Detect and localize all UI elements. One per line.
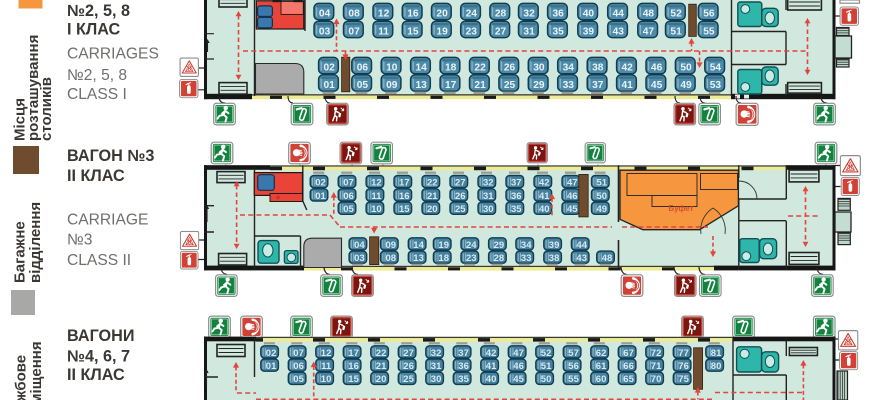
svg-text:41: 41 [486,361,497,372]
svg-text:43: 43 [613,26,625,37]
svg-text:50: 50 [680,63,692,74]
svg-text:76: 76 [678,361,689,372]
svg-text:80: 80 [711,361,722,372]
svg-text:32: 32 [431,348,442,359]
svg-text:42: 42 [539,178,550,189]
svg-text:22: 22 [376,348,387,359]
svg-text:45: 45 [567,204,578,215]
svg-text:28: 28 [494,253,505,264]
svg-text:ІІ КЛАС: ІІ КЛАС [67,167,125,185]
svg-text:43: 43 [576,253,587,264]
svg-text:приміщення: приміщення [28,341,45,400]
svg-text:25: 25 [504,80,516,91]
svg-text:47: 47 [513,348,524,359]
svg-text:13: 13 [416,80,428,91]
svg-text:25: 25 [403,374,414,385]
svg-text:відділення: відділення [27,202,44,283]
svg-text:47: 47 [567,178,578,189]
svg-text:34: 34 [521,240,532,251]
svg-text:13: 13 [413,253,424,264]
svg-text:27: 27 [495,26,507,37]
svg-text:71: 71 [651,361,662,372]
svg-text:39: 39 [549,240,560,251]
svg-text:15: 15 [348,374,359,385]
svg-text:18: 18 [445,63,457,74]
svg-text:12: 12 [321,348,332,359]
svg-text:Багажне: Багажне [12,221,29,283]
svg-text:33: 33 [563,80,575,91]
svg-text:21: 21 [474,80,486,91]
svg-text:столиків: столиків [38,77,55,141]
svg-text:01: 01 [266,361,277,372]
svg-text:20: 20 [376,374,387,385]
svg-text:65: 65 [623,374,634,385]
svg-text:61: 61 [596,361,607,372]
svg-text:35: 35 [511,204,522,215]
svg-text:72: 72 [651,348,662,359]
svg-text:14: 14 [416,63,428,74]
svg-text:26: 26 [504,63,516,74]
svg-text:20: 20 [427,204,438,215]
svg-text:37: 37 [458,348,469,359]
svg-text:22: 22 [427,178,438,189]
svg-text:42: 42 [622,63,634,74]
svg-text:18: 18 [438,253,449,264]
svg-text:08: 08 [348,9,360,20]
svg-text:03: 03 [354,253,365,264]
svg-text:12: 12 [378,9,390,20]
svg-text:20: 20 [436,9,448,20]
svg-text:01: 01 [324,80,336,91]
svg-text:31: 31 [523,26,535,37]
svg-text:ІІ КЛАС: ІІ КЛАС [67,366,125,384]
svg-text:23: 23 [466,253,477,264]
svg-text:19: 19 [438,240,449,251]
svg-text:07: 07 [343,178,354,189]
svg-text:62: 62 [596,348,607,359]
svg-text:17: 17 [445,80,457,91]
svg-text:40: 40 [539,204,550,215]
svg-text:42: 42 [486,348,497,359]
svg-text:50: 50 [541,374,552,385]
svg-text:49: 49 [597,204,608,215]
svg-text:26: 26 [455,191,466,202]
svg-text:07: 07 [293,348,304,359]
svg-text:16: 16 [348,361,359,372]
svg-text:31: 31 [431,361,442,372]
svg-text:51: 51 [597,178,608,189]
svg-text:30: 30 [483,204,494,215]
svg-text:01: 01 [315,191,326,202]
svg-text:34: 34 [563,63,575,74]
svg-text:32: 32 [483,178,494,189]
svg-text:35: 35 [553,26,565,37]
svg-text:03: 03 [319,26,331,37]
svg-text:52: 52 [670,9,682,20]
svg-text:41: 41 [622,80,634,91]
svg-text:25: 25 [455,204,466,215]
svg-text:11: 11 [378,26,389,37]
svg-text:70: 70 [651,374,662,385]
svg-text:17: 17 [348,348,359,359]
svg-text:ВАГОНИ: ВАГОНИ [67,327,134,345]
svg-text:27: 27 [403,348,414,359]
svg-text:57: 57 [568,348,579,359]
svg-text:48: 48 [643,9,655,20]
svg-text:CARRIAGES: CARRIAGES [67,46,159,63]
svg-text:19: 19 [436,26,448,37]
svg-text:67: 67 [623,348,634,359]
svg-text:Буфет: Буфет [668,204,693,213]
svg-text:48: 48 [602,253,613,264]
svg-text:52: 52 [541,348,552,359]
svg-text:46: 46 [513,361,524,372]
svg-text:14: 14 [413,240,424,251]
svg-text:49: 49 [680,80,692,91]
svg-text:37: 37 [511,178,522,189]
svg-text:06: 06 [293,361,304,372]
svg-text:39: 39 [583,26,595,37]
svg-text:66: 66 [623,361,634,372]
svg-text:51: 51 [541,361,552,372]
svg-text:04: 04 [319,9,331,20]
svg-text:38: 38 [549,253,560,264]
svg-text:24: 24 [466,9,478,20]
svg-text:CLASS II: CLASS II [67,252,131,269]
svg-text:81: 81 [711,348,722,359]
svg-text:41: 41 [539,191,550,202]
svg-text:№2, 5, 8: №2, 5, 8 [67,2,130,20]
svg-text:21: 21 [427,191,438,202]
svg-text:11: 11 [371,191,382,202]
svg-text:04: 04 [354,240,365,251]
svg-text:09: 09 [386,240,397,251]
svg-text:53: 53 [710,80,722,91]
svg-text:06: 06 [343,191,354,202]
svg-text:55: 55 [703,26,715,37]
svg-text:23: 23 [466,26,478,37]
svg-text:60: 60 [596,374,607,385]
svg-text:І КЛАС: І КЛАС [67,21,121,39]
svg-text:30: 30 [431,374,442,385]
svg-text:50: 50 [597,191,608,202]
svg-text:44: 44 [613,9,625,20]
svg-text:51: 51 [670,26,682,37]
svg-text:07: 07 [348,26,360,37]
svg-text:55: 55 [568,374,579,385]
svg-text:02: 02 [266,348,277,359]
svg-text:36: 36 [511,191,522,202]
svg-text:10: 10 [321,374,332,385]
svg-text:15: 15 [407,26,419,37]
svg-text:05: 05 [293,374,304,385]
svg-text:27: 27 [455,178,466,189]
svg-text:12: 12 [371,178,382,189]
svg-text:31: 31 [483,191,494,202]
svg-text:24: 24 [466,240,477,251]
svg-text:№4, 6, 7: №4, 6, 7 [67,348,130,366]
svg-text:44: 44 [576,240,587,251]
svg-text:15: 15 [399,204,410,215]
svg-text:47: 47 [643,26,655,37]
svg-text:46: 46 [567,191,578,202]
svg-text:30: 30 [533,63,545,74]
svg-text:21: 21 [376,361,387,372]
svg-text:08: 08 [386,253,397,264]
svg-text:77: 77 [678,348,689,359]
svg-text:11: 11 [321,361,332,372]
svg-text:16: 16 [399,191,410,202]
svg-text:32: 32 [523,9,535,20]
svg-text:38: 38 [592,63,604,74]
svg-text:10: 10 [386,63,398,74]
svg-text:17: 17 [399,178,410,189]
svg-text:37: 37 [592,80,604,91]
svg-text:10: 10 [371,204,382,215]
svg-text:40: 40 [486,374,497,385]
svg-text:35: 35 [458,374,469,385]
svg-text:29: 29 [533,80,545,91]
svg-text:05: 05 [357,80,369,91]
svg-text:36: 36 [553,9,565,20]
svg-text:28: 28 [495,9,507,20]
svg-text:45: 45 [651,80,663,91]
svg-text:54: 54 [710,63,722,74]
svg-text:36: 36 [458,361,469,372]
svg-text:Службове: Службове [13,355,30,400]
svg-text:75: 75 [678,374,689,385]
svg-text:09: 09 [386,80,398,91]
svg-text:№2, 5, 8: №2, 5, 8 [67,67,127,84]
svg-text:16: 16 [407,9,419,20]
svg-text:02: 02 [315,178,326,189]
svg-text:45: 45 [513,374,524,385]
svg-text:CLASS I: CLASS I [67,86,127,103]
svg-text:40: 40 [583,9,595,20]
svg-text:22: 22 [474,63,486,74]
svg-text:02: 02 [324,63,336,74]
svg-text:29: 29 [494,240,505,251]
svg-text:26: 26 [403,361,414,372]
svg-text:56: 56 [568,361,579,372]
svg-text:05: 05 [343,204,354,215]
svg-text:06: 06 [357,63,369,74]
svg-text:56: 56 [703,9,715,20]
svg-text:CARRIAGE: CARRIAGE [67,211,148,228]
svg-text:№3: №3 [67,232,92,249]
svg-text:ВАГОН №3: ВАГОН №3 [67,147,154,165]
svg-text:33: 33 [521,253,532,264]
svg-text:46: 46 [651,63,663,74]
